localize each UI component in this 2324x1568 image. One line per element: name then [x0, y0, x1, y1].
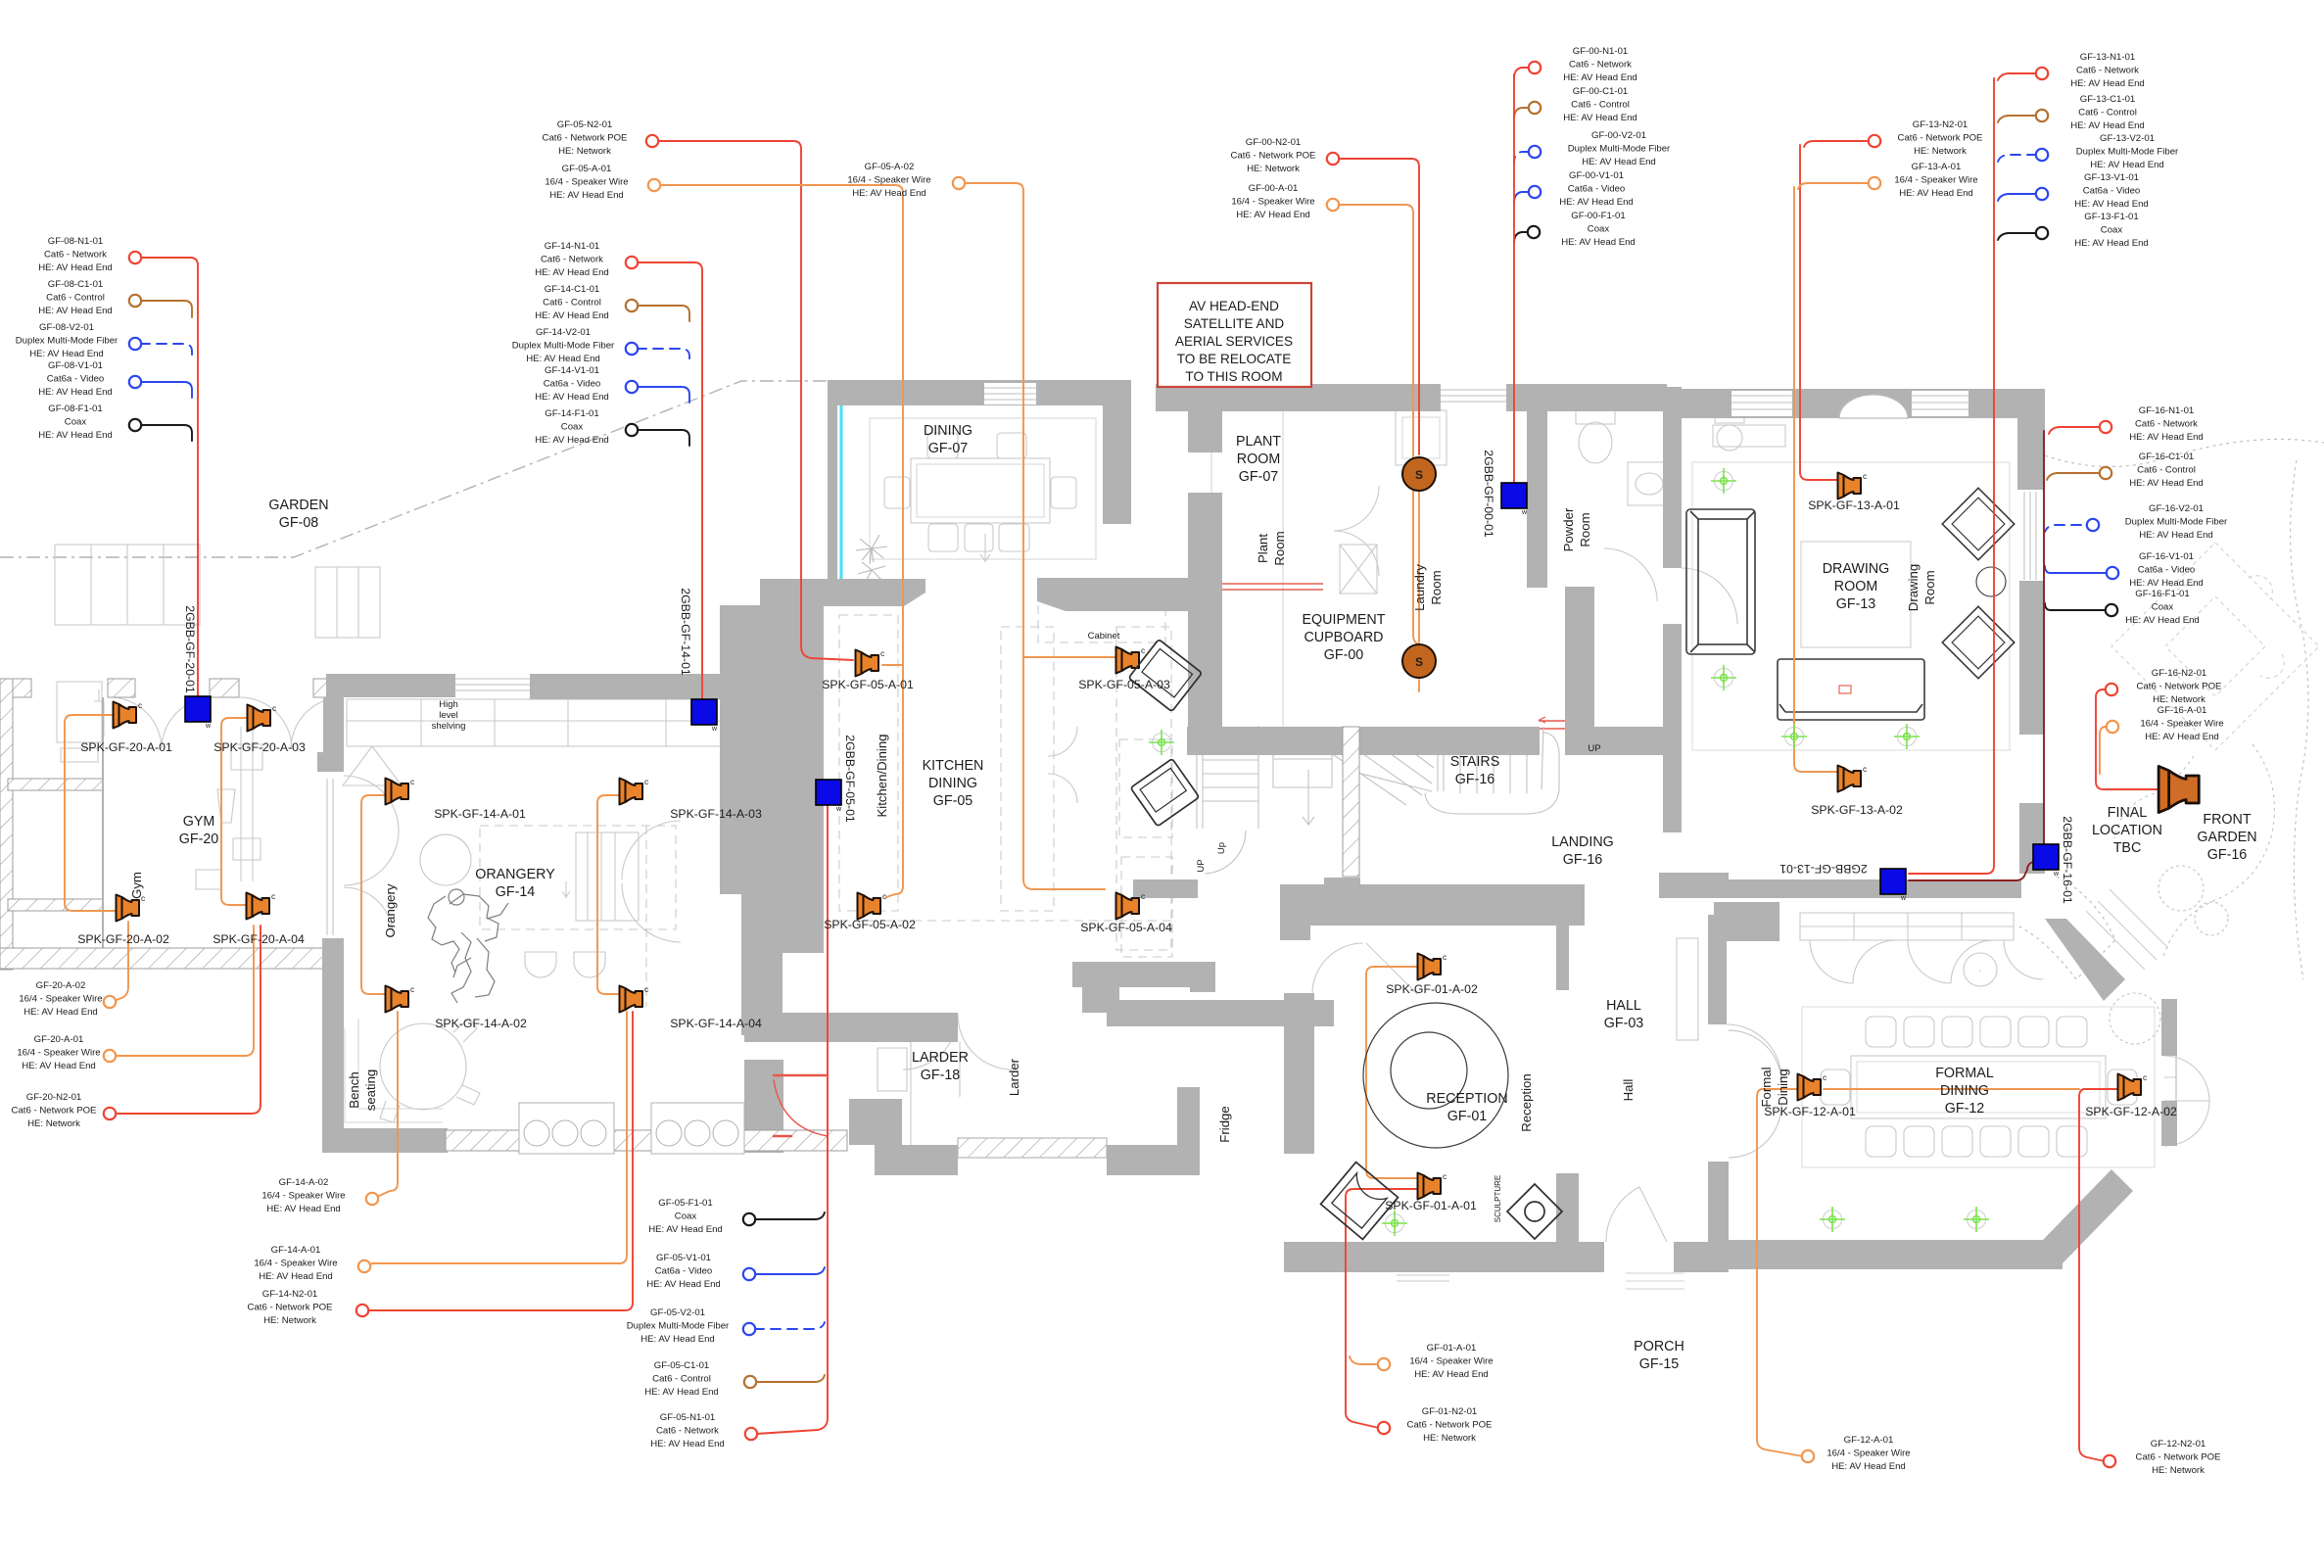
svg-text:16/4 - Speaker Wire: 16/4 - Speaker Wire [1231, 197, 1314, 208]
svg-text:HE: AV Head End: HE: AV Head End [38, 430, 113, 441]
svg-text:GARDEN: GARDEN [2197, 830, 2256, 845]
svg-text:HE: AV Head End: HE: AV Head End [2129, 432, 2204, 443]
svg-text:GARDEN: GARDEN [268, 498, 328, 513]
svg-text:SCULPTURE: SCULPTURE [1494, 1175, 1502, 1222]
svg-text:HE: AV Head End: HE: AV Head End [22, 1061, 96, 1071]
svg-text:SPK-GF-05-A-03: SPK-GF-05-A-03 [1078, 678, 1170, 691]
svg-text:Room: Room [1429, 570, 1444, 604]
svg-text:Coax: Coax [561, 422, 584, 433]
svg-text:GF-00-C1-01: GF-00-C1-01 [1573, 86, 1629, 97]
svg-text:Cat6a - Video: Cat6a - Video [2083, 186, 2141, 197]
svg-text:SPK-GF-13-A-01: SPK-GF-13-A-01 [1808, 499, 1900, 512]
svg-text:Cat6 - Network: Cat6 - Network [2135, 419, 2198, 430]
svg-text:GF-00-N1-01: GF-00-N1-01 [1573, 46, 1629, 57]
svg-text:HE: AV Head End: HE: AV Head End [2074, 199, 2149, 210]
svg-text:GF-20: GF-20 [179, 832, 219, 847]
svg-text:Cat6 - Network POE: Cat6 - Network POE [12, 1106, 97, 1117]
svg-text:S: S [1415, 655, 1423, 669]
svg-text:Duplex Multi-Mode Fiber: Duplex Multi-Mode Fiber [2125, 517, 2228, 528]
svg-text:HE: AV Head End: HE: AV Head End [2125, 615, 2200, 626]
svg-text:SPK-GF-14-A-01: SPK-GF-14-A-01 [434, 807, 526, 821]
svg-text:GF-05-V1-01: GF-05-V1-01 [656, 1253, 711, 1263]
svg-text:GF-20-N2-01: GF-20-N2-01 [26, 1092, 82, 1103]
svg-text:HALL: HALL [1606, 998, 1641, 1014]
svg-text:GF-16: GF-16 [1563, 852, 1603, 868]
svg-text:HE: AV Head End: HE: AV Head End [1831, 1461, 1906, 1472]
svg-text:HE: Network: HE: Network [1247, 164, 1300, 174]
svg-text:2GBB-GF-16-01: 2GBB-GF-16-01 [2061, 816, 2074, 904]
svg-text:RECEPTION: RECEPTION [1426, 1091, 1507, 1107]
svg-text:16/4 - Speaker Wire: 16/4 - Speaker Wire [254, 1259, 337, 1269]
svg-text:GF-05-V2-01: GF-05-V2-01 [650, 1307, 705, 1318]
svg-text:16/4 - Speaker Wire: 16/4 - Speaker Wire [847, 175, 930, 186]
svg-text:GF-00-V2-01: GF-00-V2-01 [1591, 130, 1646, 141]
svg-text:2GBB-GF-14-01: 2GBB-GF-14-01 [679, 588, 692, 676]
svg-text:SPK-GF-13-A-02: SPK-GF-13-A-02 [1811, 803, 1903, 817]
svg-text:HE: AV Head End: HE: AV Head End [1414, 1369, 1489, 1380]
svg-text:GF-16: GF-16 [2207, 847, 2248, 863]
svg-text:SATELLITE AND: SATELLITE AND [1184, 316, 1285, 331]
svg-text:GF-16-V2-01: GF-16-V2-01 [2149, 503, 2204, 514]
svg-text:TBC: TBC [2113, 840, 2142, 856]
svg-text:CUPBOARD: CUPBOARD [1304, 630, 1383, 645]
svg-text:Dining: Dining [1776, 1069, 1790, 1105]
svg-text:Cat6 - Network POE: Cat6 - Network POE [2137, 682, 2222, 692]
svg-text:Up: Up [1216, 842, 1227, 854]
svg-text:High: High [439, 699, 458, 710]
svg-text:GF-12-A-01: GF-12-A-01 [1844, 1435, 1894, 1446]
svg-text:GF-14: GF-14 [496, 884, 536, 900]
svg-text:GF-05-N1-01: GF-05-N1-01 [660, 1412, 716, 1423]
svg-text:GF-00-F1-01: GF-00-F1-01 [1571, 211, 1625, 221]
svg-text:SPK-GF-01-A-01: SPK-GF-01-A-01 [1385, 1199, 1477, 1212]
svg-text:HE: AV Head End: HE: AV Head End [266, 1204, 341, 1214]
svg-text:Formal: Formal [1759, 1067, 1774, 1107]
svg-text:SPK-GF-12-A-02: SPK-GF-12-A-02 [2085, 1105, 2177, 1118]
svg-text:Cat6 - Network: Cat6 - Network [44, 250, 107, 261]
svg-text:DINING: DINING [924, 423, 972, 439]
svg-text:PORCH: PORCH [1634, 1339, 1684, 1354]
svg-text:GF-18: GF-18 [921, 1068, 961, 1083]
svg-text:HE: AV Head End: HE: AV Head End [535, 435, 609, 446]
svg-text:SPK-GF-20-A-03: SPK-GF-20-A-03 [213, 740, 306, 754]
svg-text:GF-00: GF-00 [1324, 647, 1364, 663]
svg-text:GF-16-F1-01: GF-16-F1-01 [2135, 589, 2189, 599]
svg-text:GF-16-N1-01: GF-16-N1-01 [2139, 405, 2195, 416]
svg-text:Cat6a - Video: Cat6a - Video [1568, 184, 1626, 195]
svg-text:Cat6 - Network POE: Cat6 - Network POE [1407, 1420, 1493, 1431]
svg-text:DINING: DINING [1940, 1083, 1989, 1099]
svg-text:Coax: Coax [1588, 224, 1610, 235]
svg-text:Cat6a - Video: Cat6a - Video [544, 379, 601, 390]
svg-text:GF-16-C1-01: GF-16-C1-01 [2139, 451, 2195, 462]
svg-text:GF-14-A-02: GF-14-A-02 [279, 1177, 329, 1188]
svg-text:HE: AV Head End: HE: AV Head End [1563, 72, 1637, 83]
svg-text:HE: AV Head End: HE: AV Head End [1563, 113, 1637, 123]
svg-text:Coax: Coax [2152, 602, 2174, 613]
svg-text:HE: Network: HE: Network [1423, 1433, 1476, 1444]
svg-text:LOCATION: LOCATION [2092, 823, 2162, 838]
svg-text:GF-07: GF-07 [1239, 469, 1279, 485]
svg-text:HE: AV Head End: HE: AV Head End [1561, 237, 1636, 248]
svg-text:HE: AV Head End: HE: AV Head End [549, 190, 624, 201]
svg-text:UP: UP [1588, 743, 1600, 754]
svg-text:GF-14-A-01: GF-14-A-01 [271, 1245, 321, 1256]
svg-text:HE: AV Head End: HE: AV Head End [24, 1007, 98, 1018]
svg-text:GF-00-A-01: GF-00-A-01 [1249, 183, 1299, 194]
svg-text:GF-13-N1-01: GF-13-N1-01 [2080, 52, 2136, 63]
svg-text:GF-05-N2-01: GF-05-N2-01 [557, 119, 613, 130]
svg-text:Cat6 - Control: Cat6 - Control [46, 293, 105, 304]
svg-text:SPK-GF-12-A-01: SPK-GF-12-A-01 [1764, 1105, 1856, 1118]
svg-text:GF-13: GF-13 [1836, 596, 1876, 612]
svg-text:SPK-GF-01-A-02: SPK-GF-01-A-02 [1386, 982, 1478, 996]
svg-text:Cat6 - Network: Cat6 - Network [2076, 66, 2139, 76]
svg-text:Cat6 - Network: Cat6 - Network [656, 1426, 719, 1437]
svg-text:Duplex Multi-Mode Fiber: Duplex Multi-Mode Fiber [627, 1321, 730, 1332]
svg-text:HE: AV Head End: HE: AV Head End [648, 1224, 723, 1235]
svg-text:UP: UP [1196, 859, 1207, 872]
svg-text:HE: AV Head End: HE: AV Head End [259, 1271, 333, 1282]
svg-text:Orangery: Orangery [383, 883, 398, 937]
svg-text:Cat6 - Control: Cat6 - Control [652, 1374, 711, 1385]
svg-text:GF-16: GF-16 [1455, 772, 1495, 787]
svg-text:HE: AV Head End: HE: AV Head End [2129, 478, 2204, 489]
svg-text:Coax: Coax [65, 417, 87, 428]
svg-text:Cat6a - Video: Cat6a - Video [47, 374, 105, 385]
svg-text:FINAL: FINAL [2108, 805, 2148, 821]
svg-text:GF-14-V2-01: GF-14-V2-01 [536, 327, 591, 338]
svg-text:GF-01: GF-01 [1447, 1109, 1488, 1124]
svg-text:HE: AV Head End: HE: AV Head End [1236, 210, 1310, 220]
svg-text:SPK-GF-05-A-04: SPK-GF-05-A-04 [1080, 921, 1172, 934]
svg-text:GF-01-N2-01: GF-01-N2-01 [1422, 1406, 1478, 1417]
svg-text:LANDING: LANDING [1551, 834, 1614, 850]
svg-text:2GBB-GF-05-01: 2GBB-GF-05-01 [843, 735, 857, 823]
svg-text:SPK-GF-14-A-02: SPK-GF-14-A-02 [435, 1017, 527, 1030]
svg-text:2GBB-GF-13-01: 2GBB-GF-13-01 [1779, 862, 1868, 876]
svg-text:GF-08-F1-01: GF-08-F1-01 [48, 404, 102, 414]
svg-text:GF-16-N2-01: GF-16-N2-01 [2152, 668, 2207, 679]
svg-text:DINING: DINING [928, 776, 977, 791]
svg-text:Powder: Powder [1561, 507, 1576, 551]
svg-text:16/4 - Speaker Wire: 16/4 - Speaker Wire [1826, 1449, 1910, 1459]
svg-text:16/4 - Speaker Wire: 16/4 - Speaker Wire [19, 994, 102, 1005]
svg-text:HE: Network: HE: Network [263, 1315, 316, 1326]
svg-text:Cat6 - Network: Cat6 - Network [541, 255, 603, 265]
svg-text:HE: AV Head End: HE: AV Head End [2070, 120, 2145, 131]
svg-text:GF-05-C1-01: GF-05-C1-01 [654, 1360, 710, 1371]
svg-text:Drawing: Drawing [1906, 564, 1921, 611]
svg-text:HE: Network: HE: Network [2153, 694, 2205, 705]
svg-text:HE: Network: HE: Network [27, 1118, 80, 1129]
svg-text:Gym: Gym [129, 872, 144, 899]
svg-text:STAIRS: STAIRS [1450, 754, 1500, 770]
svg-text:Coax: Coax [675, 1212, 697, 1222]
svg-text:HE: AV Head End: HE: AV Head End [2090, 160, 2164, 170]
svg-text:HE: Network: HE: Network [1914, 146, 1967, 157]
svg-text:GF-13-A-01: GF-13-A-01 [1912, 162, 1962, 172]
svg-text:GF-20-A-02: GF-20-A-02 [36, 980, 86, 991]
svg-text:GYM: GYM [183, 814, 215, 830]
svg-text:GF-08-V1-01: GF-08-V1-01 [48, 360, 103, 371]
svg-text:HE: AV Head End: HE: AV Head End [2070, 78, 2145, 89]
svg-text:Cat6 - Control: Cat6 - Control [2137, 465, 2196, 476]
svg-text:HE: AV Head End: HE: AV Head End [535, 392, 609, 403]
svg-text:Duplex Multi-Mode Fiber: Duplex Multi-Mode Fiber [16, 336, 119, 347]
svg-text:GF-13-F1-01: GF-13-F1-01 [2084, 212, 2138, 222]
svg-text:HE: AV Head End: HE: AV Head End [2129, 578, 2204, 589]
svg-text:Room: Room [1922, 570, 1937, 604]
svg-text:Hall: Hall [1621, 1079, 1636, 1102]
svg-text:HE: AV Head End: HE: AV Head End [644, 1387, 719, 1398]
svg-text:Cat6 - Network POE: Cat6 - Network POE [1898, 133, 1983, 144]
svg-text:HE: AV Head End: HE: AV Head End [1582, 157, 1656, 167]
svg-text:PLANT: PLANT [1236, 434, 1281, 450]
svg-text:SPK-GF-14-A-03: SPK-GF-14-A-03 [670, 807, 762, 821]
svg-text:FORMAL: FORMAL [1935, 1066, 1994, 1081]
svg-text:GF-05-A-02: GF-05-A-02 [865, 162, 915, 172]
svg-text:HE: Network: HE: Network [2152, 1465, 2205, 1476]
svg-text:Cabinet: Cabinet [1088, 631, 1120, 641]
svg-text:level: level [439, 710, 458, 721]
svg-text:HE: AV Head End: HE: AV Head End [852, 188, 926, 199]
svg-text:GF-01-A-01: GF-01-A-01 [1427, 1343, 1477, 1354]
svg-text:2GBB-GF-20-01: 2GBB-GF-20-01 [183, 605, 197, 693]
svg-text:Laundry: Laundry [1412, 564, 1427, 611]
svg-text:GF-13-V1-01: GF-13-V1-01 [2084, 172, 2139, 183]
svg-text:GF-08: GF-08 [279, 515, 319, 531]
svg-text:Bench: Bench [347, 1071, 361, 1108]
svg-text:16/4 - Speaker Wire: 16/4 - Speaker Wire [261, 1191, 345, 1202]
svg-text:Reception: Reception [1519, 1073, 1534, 1131]
svg-text:Plant: Plant [1256, 534, 1270, 563]
svg-text:HE: AV Head End: HE: AV Head End [526, 354, 600, 364]
svg-text:Cat6a - Video: Cat6a - Video [2138, 565, 2196, 576]
svg-text:Duplex Multi-Mode Fiber: Duplex Multi-Mode Fiber [2076, 147, 2179, 158]
svg-text:LARDER: LARDER [912, 1050, 969, 1066]
svg-text:GF-16-A-01: GF-16-A-01 [2158, 705, 2207, 716]
svg-text:TO BE RELOCATE: TO BE RELOCATE [1177, 352, 1292, 366]
svg-text:HE: AV Head End: HE: AV Head End [1559, 197, 1634, 208]
svg-text:HE: AV Head End: HE: AV Head End [38, 262, 113, 273]
svg-text:Duplex Multi-Mode Fiber: Duplex Multi-Mode Fiber [1568, 144, 1671, 155]
svg-text:HE: AV Head End: HE: AV Head End [2145, 732, 2219, 742]
svg-text:Coax: Coax [2101, 225, 2123, 236]
svg-text:2GBB-GF-00-01: 2GBB-GF-00-01 [1482, 450, 1495, 538]
svg-text:GF-05-A-01: GF-05-A-01 [562, 164, 612, 174]
svg-text:AV HEAD-END: AV HEAD-END [1189, 299, 1279, 313]
svg-text:Cat6 - Control: Cat6 - Control [1571, 100, 1630, 111]
svg-text:GF-14-C1-01: GF-14-C1-01 [545, 284, 600, 295]
svg-text:Duplex Multi-Mode Fiber: Duplex Multi-Mode Fiber [512, 341, 615, 352]
svg-text:Fridge: Fridge [1217, 1106, 1232, 1142]
svg-text:16/4 - Speaker Wire: 16/4 - Speaker Wire [545, 177, 628, 188]
svg-text:Cat6 - Network POE: Cat6 - Network POE [248, 1303, 333, 1313]
svg-text:HE: AV Head End: HE: AV Head End [2074, 238, 2149, 249]
svg-text:Cat6a - Video: Cat6a - Video [655, 1266, 713, 1277]
svg-text:SPK-GF-20-A-04: SPK-GF-20-A-04 [213, 932, 305, 946]
svg-text:SPK-GF-14-A-04: SPK-GF-14-A-04 [670, 1017, 762, 1030]
svg-text:SPK-GF-20-A-02: SPK-GF-20-A-02 [77, 932, 169, 946]
svg-text:GF-00-N2-01: GF-00-N2-01 [1246, 137, 1302, 148]
svg-text:GF-13-V2-01: GF-13-V2-01 [2100, 133, 2155, 144]
svg-text:HE: AV Head End: HE: AV Head End [1899, 188, 1973, 199]
svg-text:HE: AV Head End: HE: AV Head End [535, 310, 609, 321]
svg-text:GF-14-N1-01: GF-14-N1-01 [545, 241, 600, 252]
svg-text:GF-14-N2-01: GF-14-N2-01 [262, 1289, 318, 1300]
svg-text:GF-12: GF-12 [1945, 1101, 1985, 1117]
svg-text:seating: seating [363, 1069, 378, 1112]
svg-text:Kitchen/Dining: Kitchen/Dining [875, 734, 889, 817]
svg-text:S: S [1415, 468, 1423, 482]
svg-text:ROOM: ROOM [1237, 451, 1280, 467]
svg-text:GF-08-V2-01: GF-08-V2-01 [39, 322, 94, 333]
svg-text:AERIAL SERVICES: AERIAL SERVICES [1175, 334, 1293, 349]
svg-text:Room: Room [1272, 531, 1287, 565]
svg-text:GF-08-C1-01: GF-08-C1-01 [48, 279, 104, 290]
svg-text:GF-16-V1-01: GF-16-V1-01 [2139, 551, 2194, 562]
svg-text:TO THIS ROOM: TO THIS ROOM [1185, 369, 1282, 384]
svg-text:16/4 - Speaker Wire: 16/4 - Speaker Wire [1894, 175, 1977, 186]
svg-text:HE: AV Head End: HE: AV Head End [29, 349, 104, 359]
svg-text:GF-05-F1-01: GF-05-F1-01 [658, 1198, 712, 1209]
svg-text:Larder: Larder [1007, 1058, 1021, 1096]
svg-text:GF-07: GF-07 [928, 441, 969, 456]
svg-text:GF-03: GF-03 [1604, 1016, 1644, 1031]
svg-text:GF-13-N2-01: GF-13-N2-01 [1913, 119, 1968, 130]
svg-text:Cat6 - Control: Cat6 - Control [543, 298, 601, 309]
svg-text:Cat6 - Network: Cat6 - Network [1569, 60, 1632, 71]
svg-text:HE: AV Head End: HE: AV Head End [650, 1439, 725, 1449]
svg-text:HE: AV Head End: HE: AV Head End [38, 306, 113, 316]
svg-text:SPK-GF-05-A-01: SPK-GF-05-A-01 [822, 678, 914, 691]
svg-text:HE: AV Head End: HE: AV Head End [535, 267, 609, 278]
svg-text:GF-00-V1-01: GF-00-V1-01 [1569, 170, 1624, 181]
svg-text:GF-12-N2-01: GF-12-N2-01 [2151, 1439, 2206, 1449]
svg-text:DRAWING: DRAWING [1823, 561, 1890, 577]
svg-text:Cat6 - Control: Cat6 - Control [2078, 108, 2137, 119]
svg-text:Cat6 - Network POE: Cat6 - Network POE [1231, 151, 1316, 162]
svg-text:16/4 - Speaker Wire: 16/4 - Speaker Wire [17, 1048, 100, 1059]
svg-text:16/4 - Speaker Wire: 16/4 - Speaker Wire [1409, 1356, 1493, 1367]
svg-text:GF-15: GF-15 [1639, 1356, 1680, 1372]
svg-text:Cat6 - Network POE: Cat6 - Network POE [543, 133, 628, 144]
svg-text:GF-13-C1-01: GF-13-C1-01 [2080, 94, 2136, 105]
svg-text:EQUIPMENT: EQUIPMENT [1303, 612, 1386, 628]
svg-text:GF-14-V1-01: GF-14-V1-01 [545, 365, 599, 376]
svg-text:GF-20-A-01: GF-20-A-01 [34, 1034, 84, 1045]
svg-text:HE: AV Head End: HE: AV Head End [646, 1279, 721, 1290]
svg-text:GF-08-N1-01: GF-08-N1-01 [48, 236, 104, 247]
svg-text:ROOM: ROOM [1834, 579, 1877, 594]
svg-text:HE: AV Head End: HE: AV Head End [2139, 530, 2213, 541]
svg-text:SPK-GF-05-A-02: SPK-GF-05-A-02 [824, 918, 916, 931]
svg-text:shelving: shelving [432, 721, 466, 732]
svg-text:HE: AV Head End: HE: AV Head End [640, 1334, 715, 1345]
svg-text:FRONT: FRONT [2203, 812, 2252, 828]
svg-text:Room: Room [1578, 512, 1592, 546]
svg-text:GF-05: GF-05 [933, 793, 973, 809]
svg-text:Cat6 - Network POE: Cat6 - Network POE [2136, 1452, 2221, 1463]
svg-text:ORANGERY: ORANGERY [475, 867, 555, 882]
svg-text:GF-14-F1-01: GF-14-F1-01 [545, 408, 598, 419]
svg-text:KITCHEN: KITCHEN [923, 758, 984, 774]
svg-text:HE: Network: HE: Network [558, 146, 611, 157]
svg-text:SPK-GF-20-A-01: SPK-GF-20-A-01 [80, 740, 172, 754]
svg-text:16/4 - Speaker Wire: 16/4 - Speaker Wire [2140, 719, 2223, 730]
svg-text:HE: AV Head End: HE: AV Head End [38, 387, 113, 398]
